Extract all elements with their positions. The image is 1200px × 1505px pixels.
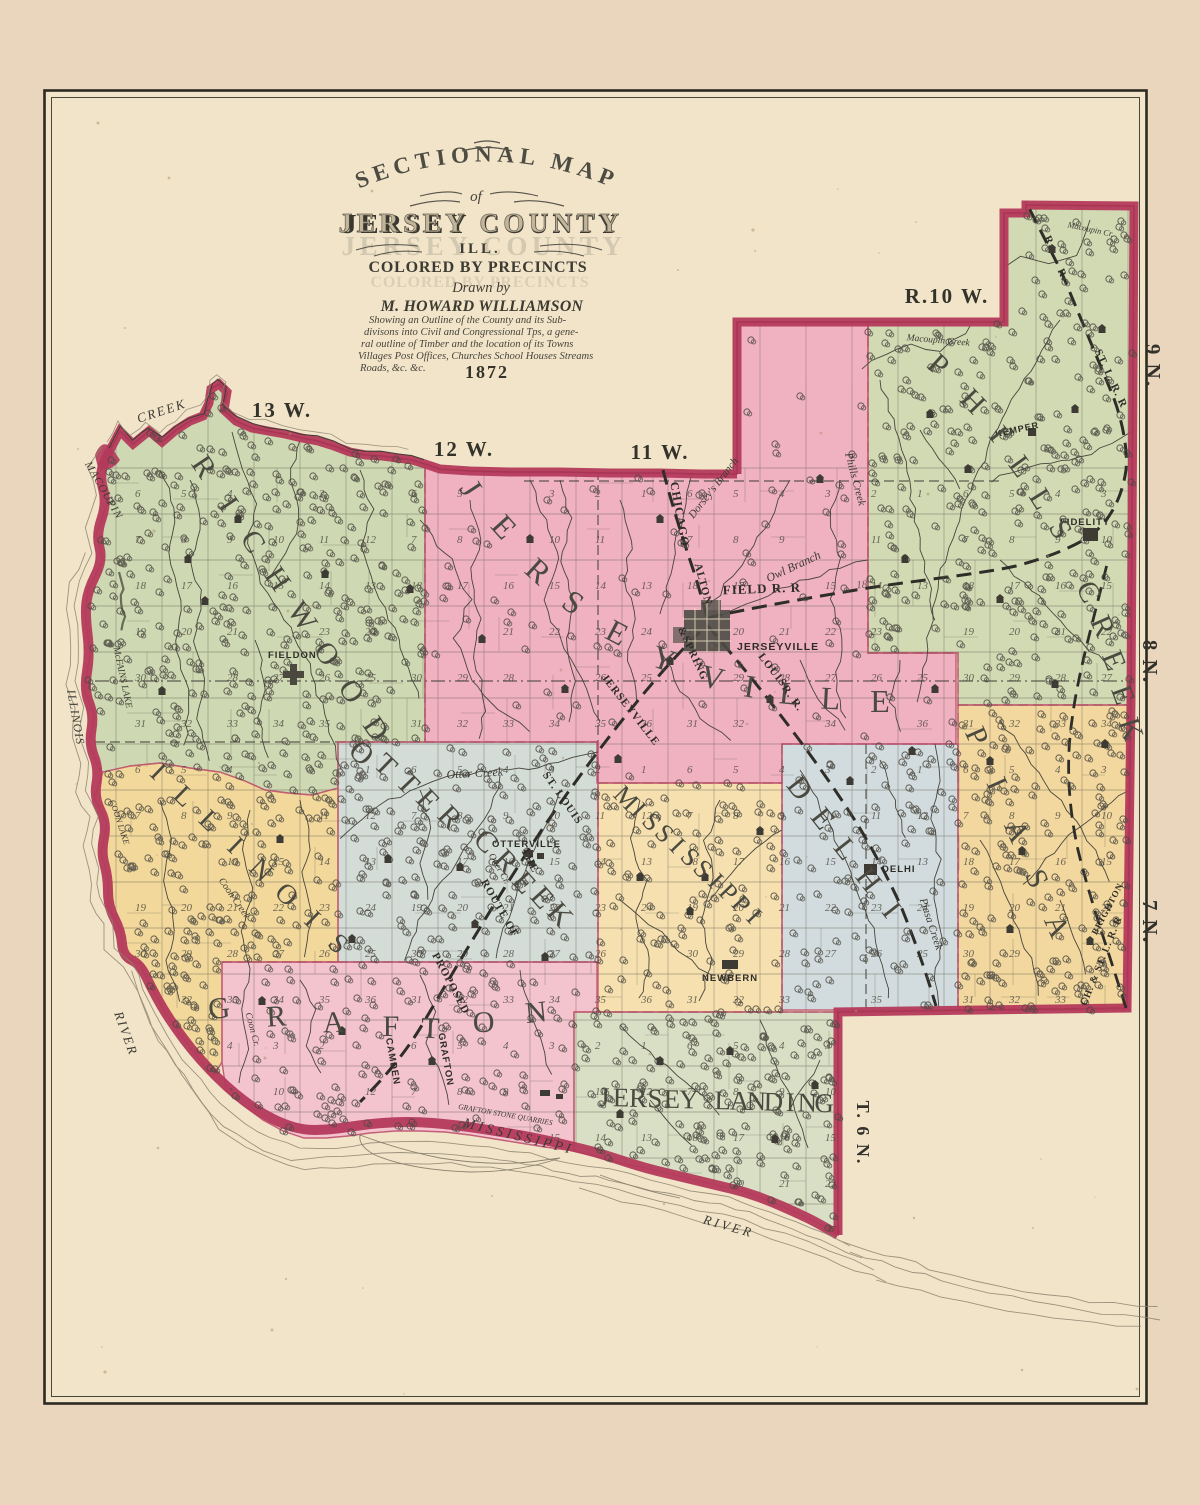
svg-text:20: 20: [733, 626, 745, 638]
svg-text:33: 33: [1054, 994, 1067, 1006]
svg-text:29: 29: [733, 948, 745, 960]
svg-text:14: 14: [871, 580, 883, 592]
svg-text:35: 35: [594, 994, 607, 1006]
svg-text:2: 2: [595, 1040, 601, 1052]
svg-text:4: 4: [779, 488, 785, 500]
svg-text:16: 16: [779, 1132, 791, 1144]
svg-text:G: G: [207, 991, 232, 1026]
svg-text:29: 29: [457, 672, 469, 684]
svg-text:3: 3: [824, 1040, 831, 1052]
svg-text:Roads, &c. &c.: Roads, &c. &c.: [359, 363, 426, 374]
svg-text:10: 10: [273, 534, 285, 546]
svg-text:13: 13: [641, 1132, 653, 1144]
svg-text:9: 9: [779, 810, 785, 822]
svg-text:1: 1: [641, 488, 647, 500]
svg-text:27: 27: [273, 672, 285, 684]
svg-text:22: 22: [825, 902, 837, 914]
svg-text:D: D: [763, 1086, 783, 1116]
svg-text:22: 22: [549, 626, 561, 638]
svg-text:13: 13: [917, 856, 929, 868]
svg-text:13 W.: 13 W.: [252, 398, 312, 422]
svg-text:35: 35: [870, 994, 883, 1006]
svg-text:31: 31: [134, 718, 146, 730]
svg-text:20: 20: [1009, 626, 1021, 638]
svg-text:21: 21: [779, 626, 790, 638]
svg-text:28: 28: [227, 672, 239, 684]
svg-text:27: 27: [273, 948, 285, 960]
svg-text:32: 32: [732, 994, 745, 1006]
svg-text:11: 11: [595, 810, 605, 822]
svg-text:JERSEY COUNTY: JERSEY COUNTY: [338, 208, 623, 238]
svg-text:6: 6: [135, 764, 141, 776]
svg-text:23: 23: [595, 902, 607, 914]
svg-text:32: 32: [1008, 994, 1021, 1006]
svg-text:34: 34: [272, 718, 285, 730]
svg-text:33: 33: [1054, 718, 1067, 730]
svg-text:4: 4: [1055, 764, 1061, 776]
svg-text:18: 18: [135, 580, 147, 592]
svg-text:21: 21: [1055, 626, 1066, 638]
svg-text:6: 6: [135, 488, 141, 500]
svg-text:11: 11: [871, 534, 881, 546]
svg-text:3: 3: [824, 764, 831, 776]
svg-text:27: 27: [549, 948, 561, 960]
svg-text:T. 6 N.: T. 6 N.: [853, 1101, 873, 1166]
svg-text:25: 25: [641, 672, 653, 684]
svg-text:35: 35: [318, 718, 331, 730]
svg-text:13: 13: [917, 580, 929, 592]
svg-text:13: 13: [365, 856, 377, 868]
svg-text:8: 8: [457, 1086, 463, 1098]
svg-text:5: 5: [181, 764, 187, 776]
svg-text:divisons into Civil and Congr: divisons into Civil and Congressional Tp…: [364, 327, 579, 338]
svg-text:28: 28: [503, 672, 515, 684]
svg-text:10: 10: [1101, 534, 1113, 546]
svg-text:O: O: [472, 1006, 495, 1040]
svg-text:11 W.: 11 W.: [630, 440, 689, 464]
svg-text:9: 9: [1055, 810, 1061, 822]
svg-text:29: 29: [733, 672, 745, 684]
svg-text:35: 35: [594, 718, 607, 730]
svg-text:33: 33: [502, 994, 515, 1006]
svg-text:18: 18: [963, 856, 975, 868]
svg-text:33: 33: [778, 994, 791, 1006]
svg-text:9: 9: [227, 810, 233, 822]
svg-text:11: 11: [871, 810, 881, 822]
svg-text:14: 14: [595, 1132, 607, 1144]
svg-text:7: 7: [135, 810, 141, 822]
svg-text:Y: Y: [679, 1084, 699, 1114]
svg-text:8: 8: [181, 810, 187, 822]
svg-text:31: 31: [410, 994, 422, 1006]
svg-text:29: 29: [1009, 948, 1021, 960]
svg-text:18: 18: [963, 580, 975, 592]
svg-text:15: 15: [825, 580, 837, 592]
svg-text:15: 15: [549, 856, 561, 868]
svg-text:36: 36: [364, 994, 377, 1006]
svg-text:R.10 W.: R.10 W.: [905, 284, 990, 308]
svg-text:19: 19: [411, 902, 423, 914]
svg-text:9: 9: [503, 1086, 509, 1098]
svg-text:4: 4: [779, 764, 785, 776]
svg-text:6: 6: [687, 1040, 693, 1052]
svg-text:12: 12: [365, 810, 377, 822]
svg-text:30: 30: [410, 672, 423, 684]
svg-text:1: 1: [641, 1040, 647, 1052]
svg-text:33: 33: [226, 718, 239, 730]
svg-text:36: 36: [916, 718, 929, 730]
svg-text:FIELD R. R: FIELD R. R: [722, 580, 801, 598]
svg-text:18: 18: [856, 579, 868, 592]
svg-text:4: 4: [779, 1040, 785, 1052]
svg-text:12 W.: 12 W.: [434, 437, 494, 461]
svg-text:NEWBERN: NEWBERN: [702, 973, 758, 984]
svg-text:2: 2: [871, 488, 877, 500]
svg-text:ILL.: ILL.: [459, 241, 501, 257]
svg-text:9: 9: [779, 534, 785, 546]
svg-text:14: 14: [595, 580, 607, 592]
svg-text:32: 32: [180, 718, 193, 730]
svg-text:8: 8: [1009, 534, 1015, 546]
svg-text:9: 9: [227, 534, 233, 546]
svg-text:R: R: [629, 1083, 648, 1113]
svg-text:6: 6: [411, 488, 417, 500]
svg-text:17: 17: [733, 1132, 745, 1144]
svg-text:R: R: [265, 999, 287, 1033]
svg-text:34: 34: [548, 994, 561, 1006]
svg-text:14: 14: [595, 856, 607, 868]
svg-text:3: 3: [272, 1040, 279, 1052]
svg-text:20: 20: [733, 1178, 745, 1190]
svg-text:23: 23: [319, 626, 331, 638]
svg-text:24: 24: [641, 626, 653, 638]
svg-text:30: 30: [410, 948, 423, 960]
svg-text:13: 13: [641, 856, 653, 868]
svg-text:8: 8: [733, 534, 739, 546]
svg-text:Drawn by: Drawn by: [451, 280, 510, 296]
svg-text:8: 8: [181, 534, 187, 546]
svg-text:26: 26: [871, 948, 883, 960]
svg-text:29: 29: [1009, 672, 1021, 684]
svg-text:17: 17: [1009, 856, 1021, 868]
svg-text:10: 10: [273, 1086, 285, 1098]
svg-text:9: 9: [503, 810, 509, 822]
svg-text:5: 5: [181, 488, 187, 500]
svg-text:18: 18: [687, 1132, 699, 1144]
svg-text:26: 26: [319, 672, 331, 684]
svg-text:36: 36: [640, 994, 653, 1006]
svg-text:14: 14: [319, 580, 331, 592]
svg-text:7: 7: [963, 810, 969, 822]
svg-text:21: 21: [779, 1178, 790, 1190]
svg-text:9 N.: 9 N.: [1141, 344, 1165, 388]
svg-text:Otter Creek: Otter Creek: [446, 765, 504, 782]
svg-text:30: 30: [134, 948, 147, 960]
svg-text:29: 29: [181, 948, 193, 960]
svg-text:A: A: [322, 1006, 345, 1040]
svg-text:21: 21: [227, 626, 238, 638]
svg-text:16: 16: [503, 580, 515, 592]
svg-text:3: 3: [1100, 764, 1107, 776]
svg-text:16: 16: [227, 580, 239, 592]
svg-text:34: 34: [1100, 718, 1113, 730]
svg-text:32: 32: [732, 718, 745, 730]
svg-text:21: 21: [503, 626, 514, 638]
svg-text:5: 5: [733, 764, 739, 776]
svg-text:30: 30: [962, 672, 975, 684]
svg-text:2: 2: [871, 764, 877, 776]
svg-text:L: L: [820, 680, 841, 717]
svg-text:16: 16: [779, 856, 791, 868]
svg-text:8: 8: [457, 534, 463, 546]
svg-text:10: 10: [1101, 810, 1113, 822]
svg-text:Villages Post Offices, Churche: Villages Post Offices, Churches School H…: [358, 351, 593, 362]
svg-text:25: 25: [365, 672, 377, 684]
svg-text:19: 19: [963, 626, 975, 638]
svg-text:1: 1: [917, 488, 923, 500]
svg-text:7: 7: [687, 810, 693, 822]
svg-text:25: 25: [365, 948, 377, 960]
svg-text:2: 2: [319, 488, 325, 500]
svg-text:22: 22: [825, 1178, 837, 1190]
svg-text:30: 30: [134, 672, 147, 684]
svg-text:17: 17: [457, 580, 469, 592]
svg-text:E: E: [663, 1084, 680, 1114]
svg-text:27: 27: [825, 948, 837, 960]
svg-text:3: 3: [1100, 488, 1107, 500]
svg-text:5: 5: [1009, 488, 1015, 500]
svg-text:10: 10: [549, 810, 561, 822]
svg-text:25: 25: [917, 672, 929, 684]
svg-text:6: 6: [963, 488, 969, 500]
svg-text:12: 12: [365, 534, 377, 546]
svg-text:5: 5: [733, 488, 739, 500]
svg-text:28: 28: [503, 948, 515, 960]
svg-text:28: 28: [227, 948, 239, 960]
svg-text:3: 3: [548, 1040, 555, 1052]
svg-text:26: 26: [595, 948, 607, 960]
svg-text:8 N.: 8 N.: [1138, 640, 1162, 684]
svg-text:S: S: [647, 1083, 663, 1113]
svg-text:20: 20: [181, 902, 193, 914]
svg-text:13: 13: [641, 580, 653, 592]
svg-text:DELHI: DELHI: [882, 864, 916, 875]
svg-text:31: 31: [962, 994, 974, 1006]
svg-text:24: 24: [365, 626, 377, 638]
svg-text:31: 31: [686, 718, 698, 730]
svg-text:17: 17: [181, 580, 193, 592]
svg-text:1: 1: [641, 764, 647, 776]
svg-text:4: 4: [503, 764, 509, 776]
svg-text:7: 7: [411, 534, 417, 546]
svg-text:19: 19: [135, 902, 147, 914]
svg-text:11: 11: [319, 810, 329, 822]
svg-text:JERSEYVILLE: JERSEYVILLE: [737, 641, 819, 653]
svg-text:19: 19: [963, 902, 975, 914]
svg-text:of: of: [470, 189, 484, 205]
svg-text:16: 16: [1055, 856, 1067, 868]
svg-text:31: 31: [410, 718, 422, 730]
svg-text:14: 14: [319, 856, 331, 868]
svg-text:11: 11: [595, 534, 605, 546]
svg-text:19: 19: [135, 626, 147, 638]
svg-text:N: N: [524, 995, 549, 1030]
svg-text:2: 2: [595, 488, 601, 500]
svg-text:21: 21: [779, 902, 790, 914]
svg-text:22: 22: [825, 626, 837, 638]
svg-text:12: 12: [365, 1086, 377, 1098]
svg-text:30: 30: [686, 948, 699, 960]
svg-text:6: 6: [963, 764, 969, 776]
svg-text:12: 12: [917, 810, 929, 822]
svg-text:24: 24: [641, 902, 653, 914]
svg-text:5: 5: [457, 1040, 463, 1052]
svg-text:31: 31: [686, 994, 698, 1006]
svg-text:32: 32: [180, 994, 193, 1006]
svg-text:25: 25: [917, 948, 929, 960]
svg-text:35: 35: [318, 994, 331, 1006]
svg-text:3: 3: [824, 488, 831, 500]
svg-text:34: 34: [548, 718, 561, 730]
svg-text:24: 24: [365, 902, 377, 914]
svg-text:1872: 1872: [465, 362, 509, 382]
svg-text:E: E: [870, 683, 890, 719]
svg-text:30: 30: [962, 948, 975, 960]
svg-text:8: 8: [733, 810, 739, 822]
svg-text:2: 2: [595, 764, 601, 776]
svg-text:4: 4: [227, 1040, 233, 1052]
svg-text:32: 32: [456, 718, 469, 730]
svg-text:34: 34: [824, 718, 837, 730]
svg-text:6: 6: [687, 764, 693, 776]
svg-text:11: 11: [319, 534, 329, 546]
svg-text:32: 32: [1008, 718, 1021, 730]
svg-text:4: 4: [503, 1040, 509, 1052]
svg-text:20: 20: [1009, 902, 1021, 914]
svg-text:17: 17: [1009, 580, 1021, 592]
svg-text:7: 7: [411, 1086, 417, 1098]
svg-text:6: 6: [687, 488, 693, 500]
svg-text:6: 6: [411, 1040, 417, 1052]
svg-text:5: 5: [733, 1040, 739, 1052]
svg-text:13: 13: [365, 580, 377, 592]
svg-text:7: 7: [963, 534, 969, 546]
svg-text:16: 16: [1055, 580, 1067, 592]
svg-text:ral outline of Timber and the: ral outline of Timber and the location o…: [361, 339, 573, 350]
svg-text:M. HOWARD WILLIAMSON: M. HOWARD WILLIAMSON: [380, 298, 584, 315]
svg-text:1: 1: [917, 764, 923, 776]
svg-text:20: 20: [181, 626, 193, 638]
svg-text:20: 20: [457, 902, 469, 914]
svg-text:J: J: [599, 1082, 610, 1112]
svg-text:17: 17: [733, 856, 745, 868]
svg-text:15: 15: [549, 580, 561, 592]
svg-text:15: 15: [825, 1132, 837, 1144]
svg-text:L: L: [714, 1085, 731, 1115]
svg-text:15: 15: [1101, 856, 1113, 868]
svg-text:7 N.: 7 N.: [1138, 900, 1162, 944]
svg-text:4: 4: [227, 764, 233, 776]
svg-text:2: 2: [319, 1040, 325, 1052]
svg-text:I: I: [786, 1087, 796, 1117]
svg-text:E: E: [613, 1082, 630, 1112]
svg-text:Showing an Outline of the Coun: Showing an Outline of the County and its…: [369, 315, 567, 326]
svg-text:23: 23: [871, 626, 883, 638]
svg-text:33: 33: [502, 718, 515, 730]
svg-text:29: 29: [457, 948, 469, 960]
svg-text:28: 28: [779, 948, 791, 960]
svg-text:10: 10: [549, 534, 561, 546]
svg-text:7: 7: [135, 534, 141, 546]
svg-text:G: G: [814, 1088, 834, 1118]
svg-text:3: 3: [548, 488, 555, 500]
